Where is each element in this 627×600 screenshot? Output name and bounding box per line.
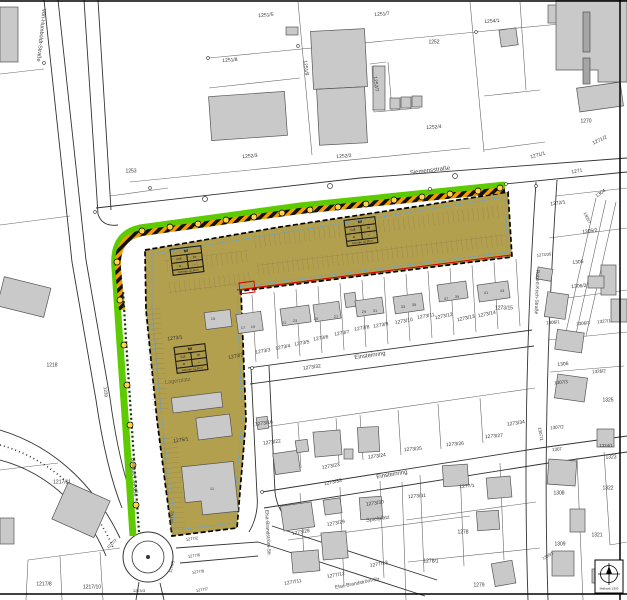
zoning-table-2: MI 0,8III a– GH max. 12,50 m [173, 343, 208, 374]
compass-icon [595, 560, 623, 593]
buildings-layer [0, 0, 627, 587]
roundabout [123, 532, 173, 582]
map-svg [0, 0, 627, 600]
zoning-table-3: MI 0,8IV a– GH max. 15,50 m [343, 216, 378, 247]
zoning-table-1: MI 0,8IV a– GH max. 15,50 m [169, 245, 204, 276]
site-plan-map: Von-Humboldt-StraßeSiemensstraßeUnnauer … [0, 0, 627, 600]
